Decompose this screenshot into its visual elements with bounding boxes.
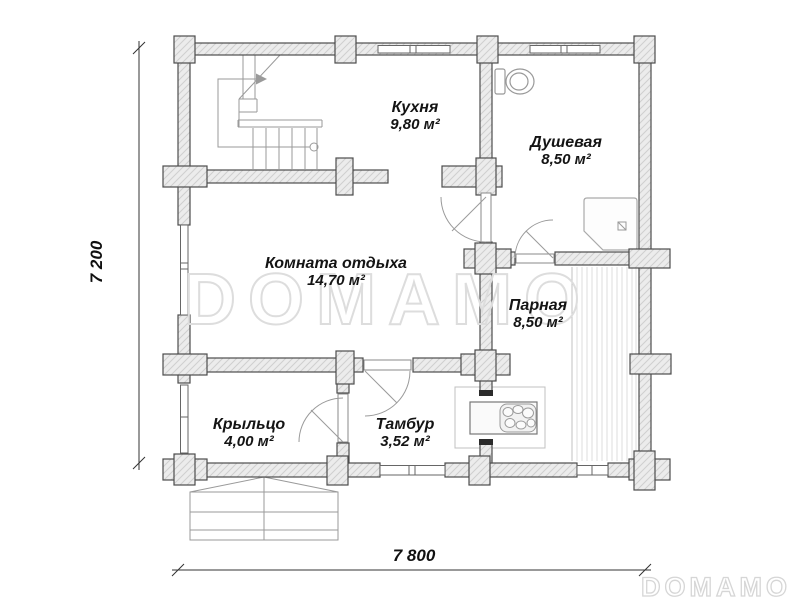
shower-tray-icon — [584, 198, 637, 250]
room-name: Кухня — [390, 99, 439, 116]
door-lounge-tambur — [365, 371, 410, 416]
door-shower-steam — [515, 220, 553, 258]
wall-bottom-left — [190, 463, 380, 477]
stairs-icon — [218, 55, 322, 169]
room-label-lounge: Комната отдыха 14,70 м² — [265, 255, 407, 289]
porch-steps-icon — [190, 477, 338, 540]
room-area: 4,00 м² — [213, 433, 285, 450]
room-name: Тамбур — [376, 416, 435, 433]
door-frame-porch-tambur — [338, 394, 348, 442]
room-name: Комната отдыха — [265, 255, 407, 272]
room-label-tambur: Тамбур 3,52 м² — [376, 416, 435, 450]
window-tambur — [380, 466, 445, 476]
room-area: 8,50 м² — [509, 314, 567, 331]
toilet-icon — [495, 69, 534, 94]
window-kitchen — [378, 46, 450, 54]
room-name: Крыльцо — [213, 416, 285, 433]
wall-kitchen-south — [190, 170, 388, 183]
room-label-kitchen: Кухня 9,80 м² — [390, 99, 439, 133]
room-area: 3,52 м² — [376, 433, 435, 450]
stove-icon — [455, 387, 545, 448]
porch-railing — [181, 385, 189, 453]
room-area: 8,50 м² — [530, 151, 602, 168]
room-label-shower: Душевая 8,50 м² — [530, 134, 602, 168]
floor-plan-page: DOMAMO DOMAMO Кухня 9,80 м² Душевая 8,50… — [0, 0, 800, 600]
dimension-label-width: 7 800 — [393, 546, 436, 566]
wall-left-upper — [178, 43, 190, 225]
window-shower — [530, 46, 600, 54]
door-lounge-shower — [441, 197, 486, 242]
wall-bottom-middle — [445, 463, 577, 477]
dimension-label-height: 7 200 — [87, 241, 107, 284]
plan-drawing: DOMAMO DOMAMO — [0, 0, 800, 600]
room-name: Парная — [509, 297, 567, 314]
room-name: Душевая — [530, 134, 602, 151]
room-area: 9,80 м² — [390, 116, 439, 133]
room-label-porch: Крыльцо 4,00 м² — [213, 416, 285, 450]
watermark-corner: DOMAMO — [641, 572, 791, 600]
door-frame-lounge-tambur — [364, 360, 411, 370]
door-porch-tambur — [299, 398, 343, 442]
room-area: 14,70 м² — [265, 272, 407, 289]
room-label-steam: Парная 8,50 м² — [509, 297, 567, 331]
